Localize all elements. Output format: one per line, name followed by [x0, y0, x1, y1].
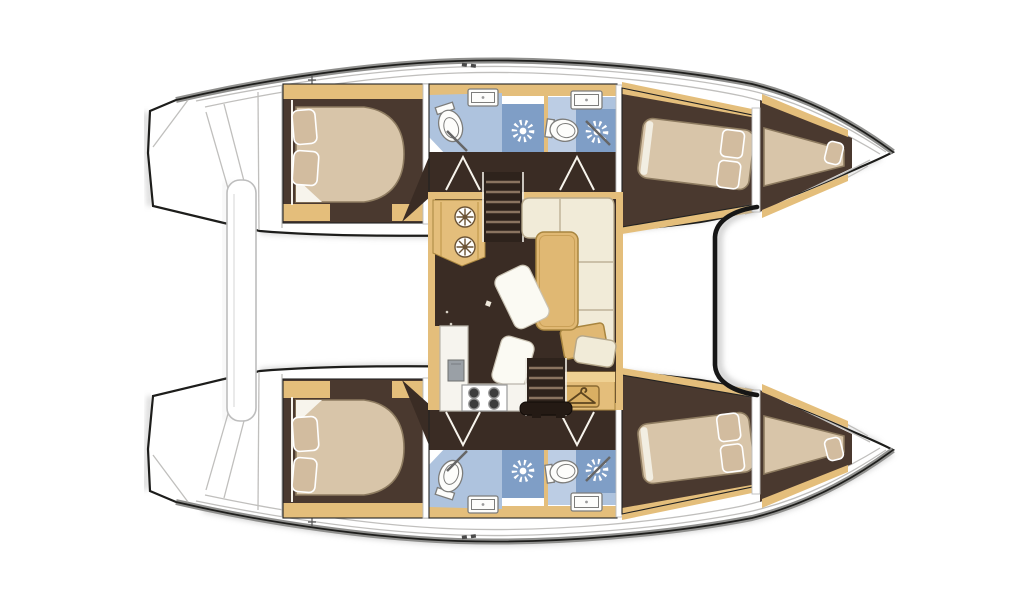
stairs-port-hull	[483, 172, 523, 242]
aft-platform-bar	[224, 180, 256, 421]
stool-rosette-icon	[455, 207, 475, 227]
galley-sink	[448, 360, 464, 381]
stove	[462, 385, 507, 411]
catamaran-floorplan: Catamaran yacht interior layout floor pl…	[0, 0, 1024, 600]
stairs-starboard-hull	[520, 358, 572, 418]
stove-burner-icon	[469, 399, 479, 409]
stove-burner-icon	[489, 399, 499, 409]
stove-burner-icon	[489, 388, 499, 398]
saloon	[432, 172, 620, 418]
forward-crossbeam	[715, 207, 757, 395]
nav-console	[433, 200, 485, 266]
stove-burner-icon	[469, 388, 479, 398]
sofa-end-cushion	[573, 335, 617, 368]
stool-rosette-icon	[455, 237, 475, 257]
